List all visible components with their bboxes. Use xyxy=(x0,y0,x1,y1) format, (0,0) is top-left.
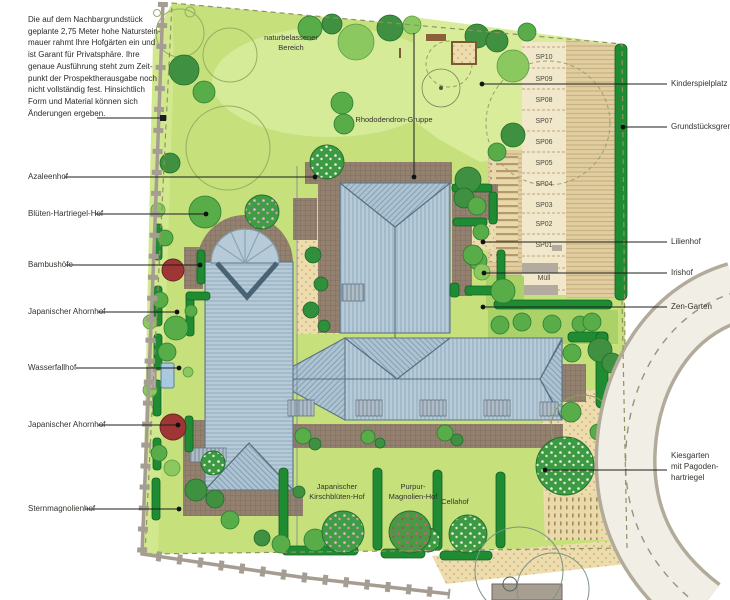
label-sternmagnolienhof: Sternmagnolienhof xyxy=(28,504,95,514)
label-kiesgarten: Kiesgarten mit Pagoden- hartriegel xyxy=(671,450,719,483)
road xyxy=(622,292,730,600)
label-zen-garten: Zen-Garten xyxy=(671,302,712,312)
label-kinderspielplatz: Kinderspielplatz xyxy=(671,79,727,89)
label-rhododendron-gruppe: Rhododendron-Gruppe xyxy=(334,115,454,125)
label-wasserfallhof: Wasserfallhof xyxy=(28,363,76,373)
parking-spot-sp10: SP10 xyxy=(522,53,566,62)
label-cellahof: Cellahof xyxy=(425,497,485,507)
parking-waste-area: Müll xyxy=(522,274,566,283)
parking-spot-sp08: SP08 xyxy=(522,96,566,105)
parking-spot-sp06: SP06 xyxy=(522,138,566,147)
garden-site-plan: Die auf dem Nachbargrundstück geplante 2… xyxy=(0,0,730,600)
label-japanischer-ahornhof-1: Japanischer Ahornhof xyxy=(28,307,105,317)
label-bambushoefe: Bambushöfe xyxy=(28,260,73,270)
label-naturbelassener-bereich: naturbelassener Bereich xyxy=(236,33,346,52)
wall-annotation: Die auf dem Nachbargrundstück geplante 2… xyxy=(28,14,178,119)
parking-spot-sp03: SP03 xyxy=(522,201,566,210)
label-lilienhof: Lilienhof xyxy=(671,237,701,247)
label-azaleenhof: Azaleenhof xyxy=(28,172,68,182)
parking-spot-sp09: SP09 xyxy=(522,75,566,84)
parking-spot-sp07: SP07 xyxy=(522,117,566,126)
parking-spot-sp01: SP01 xyxy=(522,241,566,250)
label-grundstuecksgrenze: Grundstücksgrenze xyxy=(671,122,730,132)
parking-spot-sp05: SP05 xyxy=(522,159,566,168)
label-japanischer-ahornhof-2: Japanischer Ahornhof xyxy=(28,420,105,430)
parking-spot-sp04: SP04 xyxy=(522,180,566,189)
label-irishof: Irishof xyxy=(671,268,693,278)
label-blueten-hartriegel: Blüten-Hartriegel-Hof xyxy=(28,209,103,219)
parking-spot-sp02: SP02 xyxy=(522,220,566,229)
